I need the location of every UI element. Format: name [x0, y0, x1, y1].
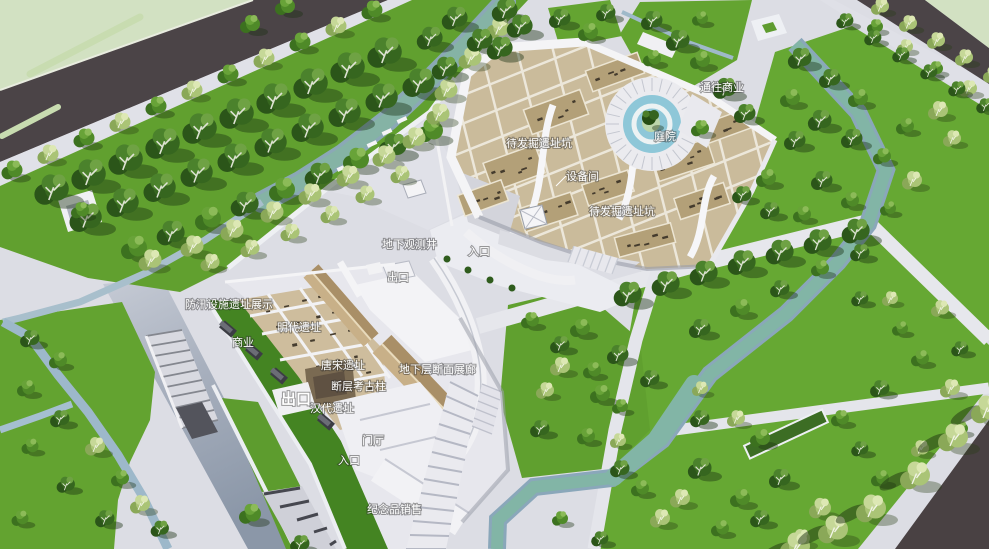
svg-text:待发掘遗址坑: 待发掘遗址坑	[506, 136, 572, 150]
svg-text:纪念品销售: 纪念品销售	[367, 502, 422, 516]
svg-text:待发掘遗址坑: 待发掘遗址坑	[589, 204, 655, 218]
svg-text:入口: 入口	[338, 455, 360, 467]
svg-text:出口: 出口	[387, 270, 409, 284]
svg-text:汉代遗址: 汉代遗址	[310, 401, 354, 415]
svg-text:入口: 入口	[468, 246, 490, 258]
svg-text:地下层断面展廊: 地下层断面展廊	[399, 362, 476, 376]
svg-text:唐宋遗址: 唐宋遗址	[321, 358, 365, 372]
svg-text:地下观测井: 地下观测井	[382, 237, 437, 251]
svg-text:防汛设施遗址展示: 防汛设施遗址展示	[185, 297, 273, 311]
svg-text:断层考古柱: 断层考古柱	[331, 379, 386, 393]
svg-text:通往商业: 通往商业	[700, 80, 744, 94]
svg-text:设备间: 设备间	[566, 169, 599, 183]
svg-text:庭院: 庭院	[654, 129, 676, 143]
svg-text:明代遗址: 明代遗址	[277, 320, 321, 334]
svg-text:出口: 出口	[281, 390, 311, 408]
svg-text:门厅: 门厅	[362, 433, 384, 447]
svg-text:商业: 商业	[232, 335, 254, 349]
